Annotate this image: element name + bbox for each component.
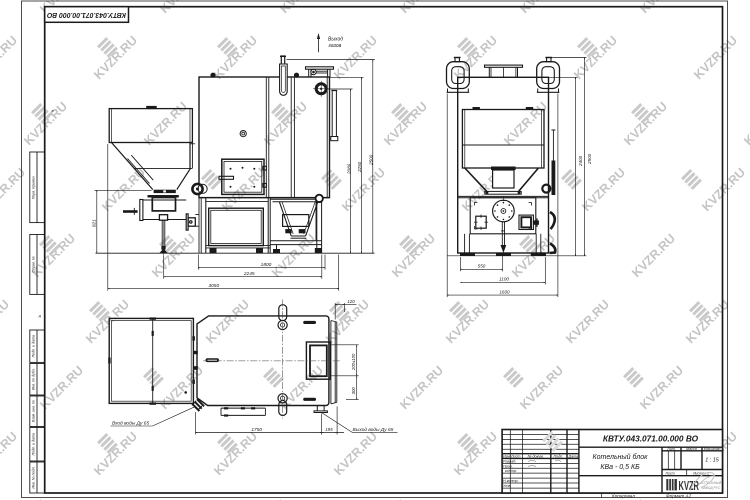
svg-text:КВТУ.043.071.00.000 ВО: КВТУ.043.071.00.000 ВО <box>603 434 699 444</box>
svg-text:Подп. и дата: Подп. и дата <box>31 433 35 456</box>
svg-text:1 : 15: 1 : 15 <box>705 458 719 464</box>
svg-text:Масса: Масса <box>686 447 697 451</box>
svg-text:Инв. № подл.: Инв. № подл. <box>31 466 35 488</box>
svg-text:КВа - 0,5 КБ: КВа - 0,5 КБ <box>600 464 640 471</box>
svg-text:550: 550 <box>478 264 486 269</box>
svg-text:Выход: Выход <box>328 37 343 43</box>
svg-text:Лист: Лист <box>510 454 521 458</box>
svg-text:Подп. и дата: Подп. и дата <box>31 335 35 358</box>
svg-text:КВТУ.043.071.00.000 ВО: КВТУ.043.071.00.000 ВО <box>46 11 126 18</box>
svg-text:120: 120 <box>347 299 355 304</box>
svg-text:КОТЕЛЬНЫЙ: КОТЕЛЬНЫЙ <box>701 481 722 485</box>
svg-text:Лист: Лист <box>664 471 674 475</box>
svg-text:Инв. № дубл.: Инв. № дубл. <box>31 368 35 390</box>
svg-text:3050: 3050 <box>208 283 219 289</box>
svg-text:2500: 2500 <box>587 153 592 165</box>
svg-text:Вход воды Ду 65: Вход воды Ду 65 <box>112 421 149 427</box>
svg-text:2400: 2400 <box>578 155 583 167</box>
svg-text:821: 821 <box>91 219 96 227</box>
svg-text:2250: 2250 <box>357 161 362 173</box>
svg-text:Перв. примен.: Перв. примен. <box>31 175 35 199</box>
svg-text:300: 300 <box>351 387 356 395</box>
svg-text:газов: газов <box>329 43 342 49</box>
svg-text:2245: 2245 <box>243 271 255 277</box>
svg-text:200±100: 200±100 <box>351 353 356 371</box>
svg-text:Справ. №: Справ. № <box>31 256 35 272</box>
svg-text:1600: 1600 <box>499 289 510 294</box>
svg-text:контр.: контр. <box>505 469 517 473</box>
svg-text:Подп.: Подп. <box>554 454 564 458</box>
svg-text:Н.контр.: Н.контр. <box>503 479 519 483</box>
svg-text:195: 195 <box>325 427 333 432</box>
svg-text:Выход воды Ду 65: Выход воды Ду 65 <box>353 427 394 433</box>
svg-text:Формат А2: Формат А2 <box>666 493 692 498</box>
svg-text:Утв.: Утв. <box>503 484 511 488</box>
svg-text:Масштаб: Масштаб <box>704 447 722 451</box>
svg-text:Изм.: Изм. <box>503 454 511 458</box>
svg-text:в: в <box>51 108 53 113</box>
svg-text:Дата: Дата <box>568 454 579 458</box>
svg-text:Взам. инв. №: Взам. инв. № <box>31 400 35 422</box>
svg-text:Котельный блок: Котельный блок <box>593 453 649 461</box>
svg-text:2086: 2086 <box>346 163 351 175</box>
svg-text:1750: 1750 <box>251 427 262 433</box>
svg-text:№ докум.: № докум. <box>528 454 544 458</box>
svg-text:1800: 1800 <box>261 262 272 268</box>
svg-text:Копировал: Копировал <box>612 493 635 498</box>
svg-text:Пров.: Пров. <box>503 464 513 468</box>
svg-text:Лит.: Лит. <box>666 447 675 451</box>
svg-text:Разраб.: Разраб. <box>503 459 516 463</box>
svg-text:А: А <box>37 314 41 319</box>
svg-text:2500: 2500 <box>368 154 373 166</box>
svg-text:1100: 1100 <box>499 277 509 282</box>
